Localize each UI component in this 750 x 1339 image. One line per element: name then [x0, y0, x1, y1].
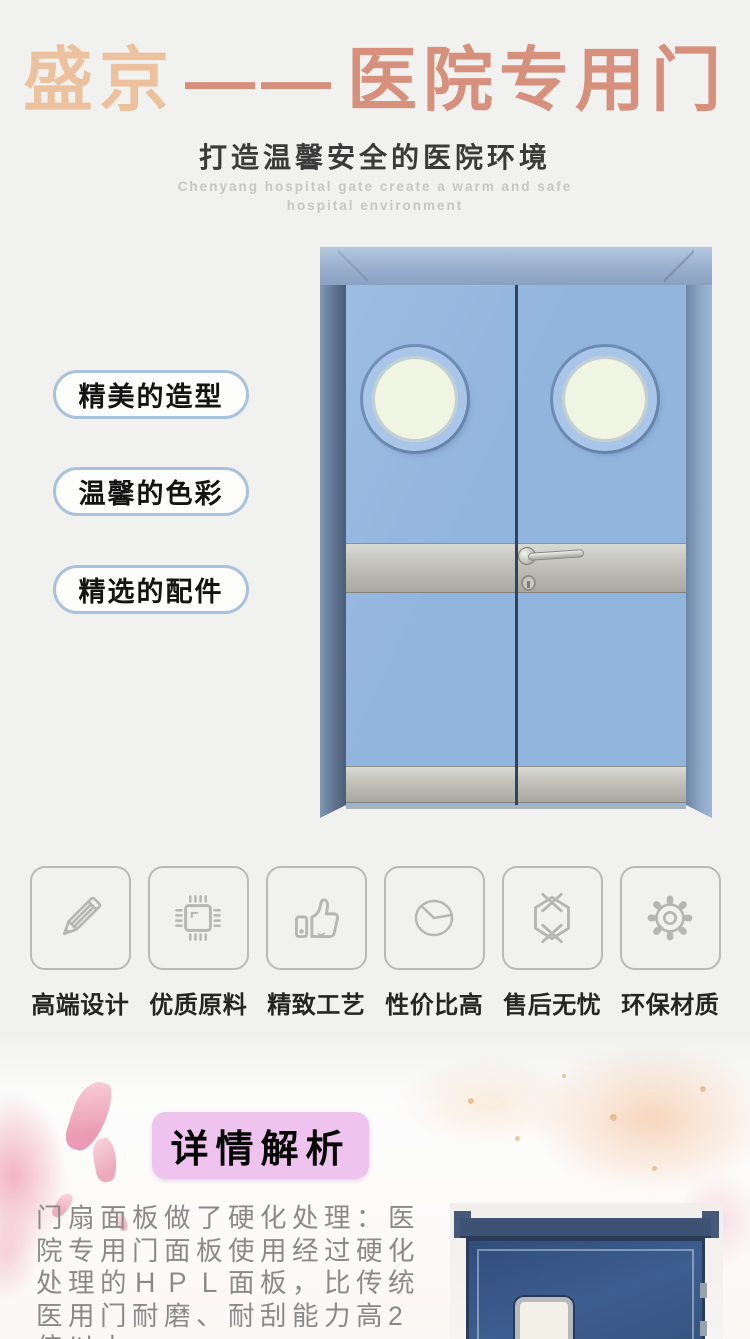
selling-points-row: 高端设计 优质原料 [30, 866, 720, 1020]
gold-speckle [468, 1098, 474, 1104]
frame-miter-joint-right [664, 247, 694, 285]
photo-door-hinge [700, 1321, 707, 1336]
porthole-window-left [363, 347, 467, 451]
icon-box [620, 866, 721, 970]
gold-speckle [562, 1074, 566, 1078]
hospital-door-image [320, 247, 712, 818]
paragraph-line: 倍以上 [36, 1332, 436, 1339]
door-bottom-shadow [346, 805, 686, 809]
porthole-window-right [553, 347, 657, 451]
product-category: 医院专用门 [347, 41, 727, 119]
door-frame-lintel [320, 247, 712, 285]
photo-door-window [515, 1297, 573, 1339]
subtitle: 打造温馨安全的医院环境 [0, 136, 750, 176]
door-leaves [346, 285, 686, 805]
feature-pill-color: 温馨的色彩 [53, 467, 249, 516]
door-frame-left-jamb [320, 249, 346, 818]
feature-pill-label: 精美的造型 [79, 375, 224, 414]
selling-point-value: 性价比高 [384, 866, 485, 1020]
selling-point-design: 高端设计 [30, 866, 131, 1020]
icon-box [384, 866, 485, 970]
feature-pill-design: 精美的造型 [53, 370, 249, 419]
icon-box [148, 866, 249, 970]
feature-pill-label: 温馨的色彩 [79, 472, 224, 511]
gold-speckle [610, 1114, 617, 1121]
detail-paragraph: 门扇面板做了硬化处理：医 院专用门面板使用经过硬化 处理的ＨＰＬ面板，比传统 医… [36, 1202, 436, 1339]
feature-pill-accessories: 精选的配件 [53, 565, 249, 614]
selling-point-label: 售后无忧 [503, 985, 601, 1020]
door-detail-photo [450, 1203, 723, 1339]
paragraph-line: 医用门耐磨、耐刮能力高2 [36, 1300, 436, 1333]
door-keyhole [527, 581, 530, 588]
frame-miter-joint-left [338, 247, 368, 285]
thumbs-up-icon [283, 885, 349, 951]
photo-frame-lintel [460, 1218, 711, 1238]
pie-chart-icon [401, 885, 467, 951]
gold-speckle [652, 1166, 657, 1171]
page-title: 盛京——医院专用门 [0, 24, 750, 125]
subtitle-english: Chenyang hospital gate create a warm and… [145, 177, 605, 215]
brand-name: 盛京 [23, 41, 175, 119]
chip-icon [165, 885, 231, 951]
icon-box [502, 866, 603, 970]
door-frame-right-jamb [686, 249, 712, 818]
door-leaf-gap [515, 285, 518, 805]
gear-icon [637, 885, 703, 951]
paragraph-line: 院专用门面板使用经过硬化 [36, 1235, 436, 1268]
gold-speckle [515, 1136, 520, 1141]
gold-speckle [700, 1086, 706, 1092]
selling-point-label: 高端设计 [31, 985, 129, 1020]
paragraph-line: 门扇面板做了硬化处理：医 [36, 1202, 436, 1235]
selling-point-material: 优质原料 [148, 866, 249, 1020]
icon-box [30, 866, 131, 970]
selling-point-eco: 环保材质 [620, 866, 721, 1020]
paragraph-line: 处理的ＨＰＬ面板，比传统 [36, 1267, 436, 1300]
selling-point-craft: 精致工艺 [266, 866, 367, 1020]
selling-point-label: 环保材质 [621, 985, 719, 1020]
feature-pill-label: 精选的配件 [79, 570, 224, 609]
photo-door-hinge [700, 1283, 707, 1298]
detail-section-badge: 详情解析 [152, 1112, 369, 1179]
pencil-icon [47, 885, 113, 951]
selling-point-aftersale: 售后无忧 [502, 866, 603, 1020]
selling-point-label: 精致工艺 [267, 985, 365, 1020]
package-icon [519, 885, 585, 951]
title-dash: —— [185, 41, 337, 119]
icon-box [266, 866, 367, 970]
product-detail-page: 盛京——医院专用门 打造温馨安全的医院环境 Chenyang hospital … [0, 0, 750, 1339]
selling-point-label: 性价比高 [385, 985, 483, 1020]
photo-door-inner-trim [477, 1249, 694, 1339]
detail-badge-label: 详情解析 [170, 1118, 350, 1173]
photo-door-leaf [466, 1238, 705, 1339]
selling-point-label: 优质原料 [149, 985, 247, 1020]
watercolor-splash-mid [355, 1040, 625, 1165]
